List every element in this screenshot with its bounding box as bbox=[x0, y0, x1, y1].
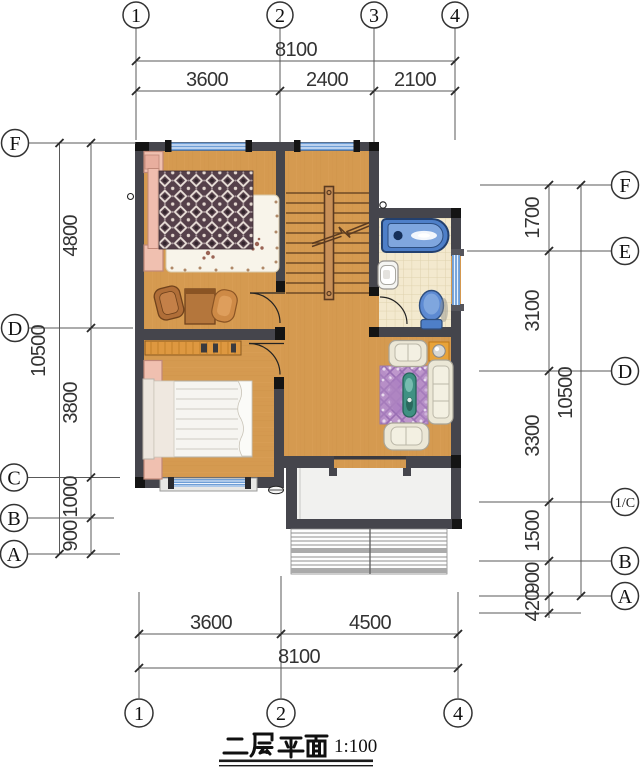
svg-text:3: 3 bbox=[369, 5, 379, 27]
svg-text:B: B bbox=[7, 508, 20, 530]
svg-text:1:100: 1:100 bbox=[334, 736, 377, 757]
svg-text:F: F bbox=[619, 175, 630, 197]
svg-text:1/C: 1/C bbox=[615, 496, 635, 511]
svg-text:4800: 4800 bbox=[60, 215, 82, 257]
svg-text:10500: 10500 bbox=[28, 325, 50, 377]
svg-text:3100: 3100 bbox=[522, 290, 544, 332]
svg-text:C: C bbox=[7, 468, 20, 490]
svg-text:8100: 8100 bbox=[278, 646, 321, 668]
svg-text:3600: 3600 bbox=[186, 69, 229, 91]
svg-text:900: 900 bbox=[522, 562, 544, 594]
svg-text:4500: 4500 bbox=[349, 612, 392, 634]
svg-text:2400: 2400 bbox=[306, 69, 349, 91]
svg-text:1: 1 bbox=[134, 703, 144, 725]
svg-text:3600: 3600 bbox=[190, 612, 233, 634]
svg-text:2: 2 bbox=[276, 703, 286, 725]
svg-text:A: A bbox=[618, 586, 633, 608]
svg-text:1500: 1500 bbox=[522, 510, 544, 552]
svg-text:10500: 10500 bbox=[555, 367, 577, 419]
svg-text:B: B bbox=[618, 551, 631, 573]
svg-text:E: E bbox=[619, 241, 631, 263]
svg-text:2100: 2100 bbox=[394, 69, 437, 91]
svg-text:420: 420 bbox=[522, 590, 544, 622]
svg-text:1700: 1700 bbox=[522, 197, 544, 239]
svg-text:900: 900 bbox=[60, 520, 82, 552]
svg-text:D: D bbox=[618, 361, 632, 383]
svg-text:8100: 8100 bbox=[275, 39, 318, 61]
svg-text:D: D bbox=[8, 318, 22, 340]
svg-text:1000: 1000 bbox=[60, 476, 82, 518]
svg-text:2: 2 bbox=[275, 5, 285, 27]
svg-text:4: 4 bbox=[450, 5, 460, 27]
svg-text:1: 1 bbox=[131, 5, 141, 27]
svg-text:3800: 3800 bbox=[60, 382, 82, 424]
svg-text:A: A bbox=[7, 544, 22, 566]
svg-text:3300: 3300 bbox=[522, 415, 544, 457]
svg-text:4: 4 bbox=[453, 703, 463, 725]
svg-text:F: F bbox=[9, 133, 20, 155]
